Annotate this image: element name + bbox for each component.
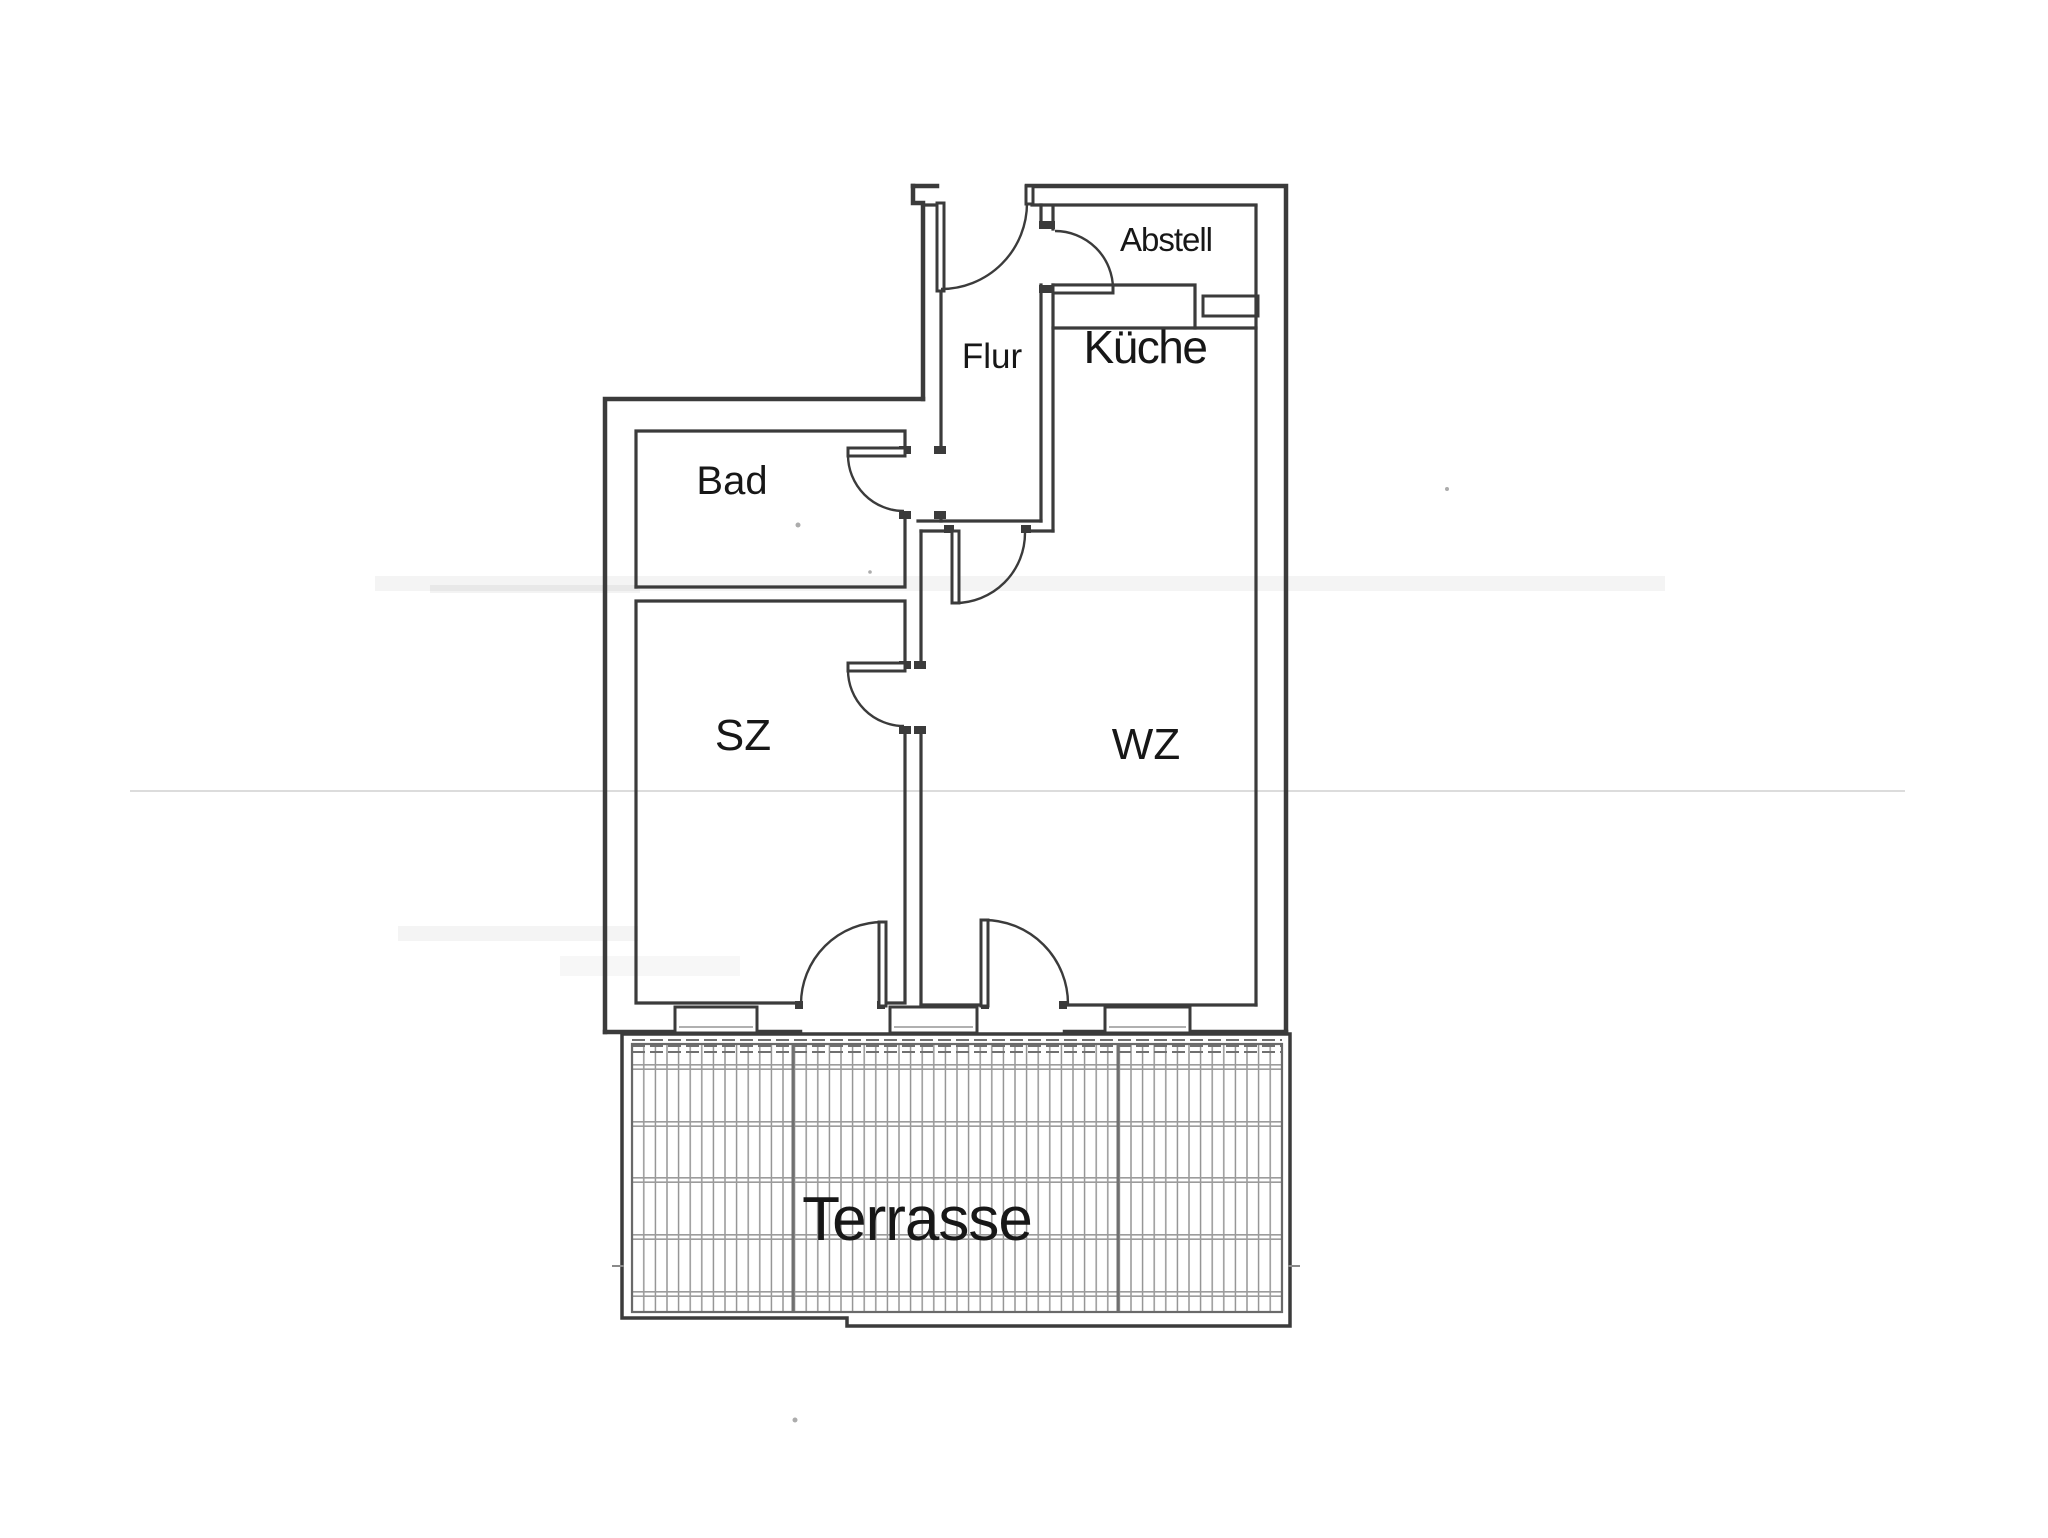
windows (675, 1007, 1190, 1033)
room-label-sz: SZ (715, 711, 771, 760)
room-label-terrasse: Terrasse (802, 1185, 1032, 1254)
sz-window (675, 1007, 757, 1033)
room-label-abstell: Abstell (1120, 221, 1212, 258)
duct-niche (1203, 296, 1258, 316)
sz-terrace-door (801, 922, 886, 1006)
room-label-flur: Flur (962, 337, 1023, 376)
room-label-kueche: Küche (1084, 321, 1207, 373)
middle-window (890, 1007, 977, 1033)
wz-window (1105, 1007, 1190, 1033)
room-sz-outline (636, 601, 905, 1003)
abstell-door (1053, 231, 1113, 293)
doors (801, 203, 1113, 1006)
flur-wz-door (952, 531, 1025, 603)
sz-door (848, 663, 905, 726)
room-label-wz: WZ (1112, 720, 1180, 769)
door-jambs (795, 186, 1067, 1009)
outer-walls (605, 186, 1286, 1032)
floor-plan-canvas: Flur Abstell Küche Bad SZ WZ Terrasse (0, 0, 2048, 1538)
terrace (612, 1034, 1300, 1326)
wz-terrace-door (981, 920, 1068, 1006)
room-label-bad: Bad (696, 459, 767, 503)
bad-door (848, 448, 905, 511)
entrance-door (937, 203, 1027, 291)
